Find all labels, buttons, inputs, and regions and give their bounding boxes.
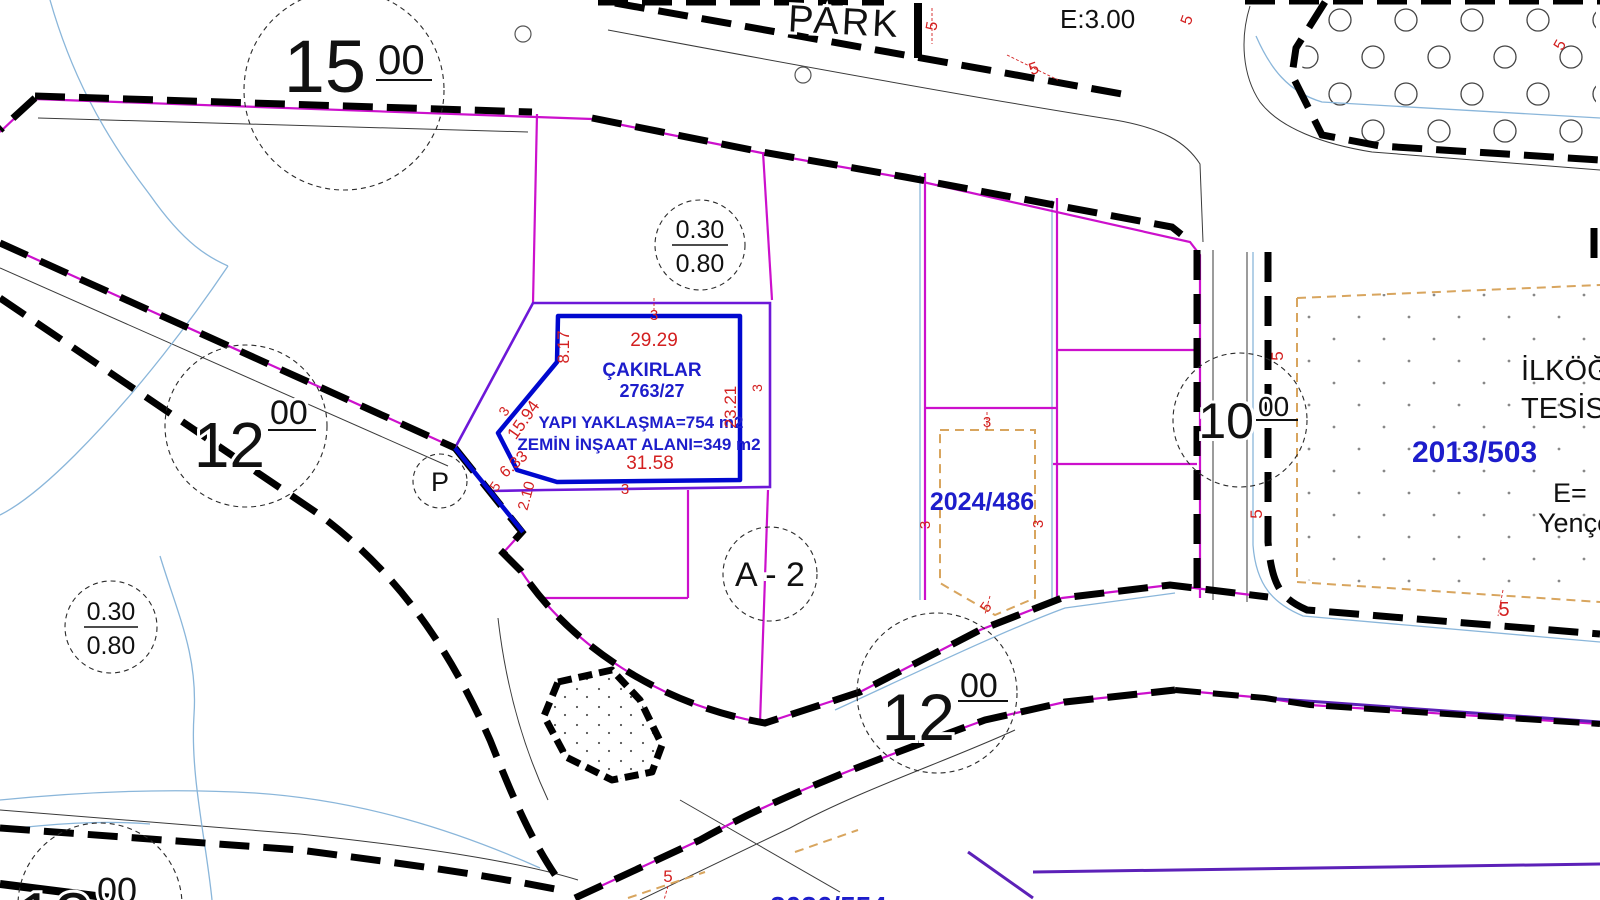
- ratio-bottom-value: 0.80: [676, 250, 725, 278]
- small-marker-circle: [515, 26, 531, 42]
- parcel-line-dark: [1265, 698, 1600, 722]
- imar-plan-canvas: 15 00 12 00 10 00 12 00 12 00 0.30 0.80: [0, 0, 1600, 900]
- road-line: [0, 98, 35, 130]
- cakirlar-name: ÇAKIRLAR: [602, 360, 701, 381]
- school-line2: TESİS: [1521, 392, 1600, 425]
- school-line3: E=: [1553, 478, 1587, 508]
- park-hatch-area: [1300, 6, 1596, 152]
- park-area-label: PARK: [787, 0, 902, 46]
- dim-left-small: 2.10: [515, 480, 539, 513]
- setback-5-label: 5: [923, 20, 941, 32]
- setback-5-label: 5: [1247, 509, 1266, 518]
- school-line4: Yenço: [1538, 508, 1600, 538]
- cakirlar-ground-area: ZEMİN İNŞAAT ALANI=349 m2: [517, 435, 760, 454]
- dim-bottom: 31.58: [626, 453, 674, 474]
- parking-label: P: [431, 467, 449, 497]
- emsal-label: E:3.00: [1060, 4, 1135, 34]
- road-width-label-10: 10 00: [1198, 391, 1298, 449]
- road-width-sup: 00: [97, 870, 137, 900]
- road-width-main: 12: [882, 680, 955, 754]
- setback-5-label: 5: [977, 599, 996, 616]
- road-width-label-12-left: 12 00: [194, 394, 316, 481]
- cakirlar-approach-area: YAPI YAKLAŞMA=754 m2: [539, 413, 744, 432]
- road-width-main: 12: [194, 409, 265, 481]
- stream-line: [0, 791, 540, 868]
- road-width-main: 10: [1198, 393, 1254, 449]
- setback-3-label: 3: [621, 481, 629, 498]
- parcel-2026-label: 2026/554: [770, 891, 887, 900]
- stream-line: [160, 556, 212, 900]
- dim-top: 29.29: [630, 330, 678, 351]
- setback-3-label: 3: [1030, 520, 1047, 528]
- block-boundary: [35, 99, 1200, 598]
- ratio-bottom-value: 0.80: [87, 632, 136, 660]
- ratio-label-bottom-left: 0.30 0.80: [84, 598, 138, 660]
- parcel-line-dark: [1033, 864, 1600, 872]
- setback-5-label: 5: [1498, 599, 1509, 621]
- road-width-sup: 00: [270, 394, 308, 432]
- dim-right: 23.21: [721, 386, 740, 429]
- parcel-2024-label: 2024/486: [930, 488, 1034, 516]
- road-width-sup: 00: [1258, 391, 1289, 422]
- setback-3-label: 3: [917, 521, 934, 529]
- school-parcel-no: 2013/503: [1412, 436, 1537, 469]
- setback-5-label: 5: [1268, 351, 1287, 360]
- parcel-line: [763, 152, 772, 300]
- approach-line-2024: [940, 430, 1035, 615]
- ratio-label-top: 0.30 0.80: [672, 216, 728, 278]
- approach-line-small: [795, 830, 858, 852]
- traffic-island: [544, 670, 662, 780]
- parcel-line-dark: [968, 852, 1033, 898]
- dim-left: 8.17: [554, 330, 573, 363]
- setback-3-label: 3: [749, 384, 765, 392]
- zoning-plan-viewport: 15 00 12 00 10 00 12 00 12 00 0.30 0.80: [0, 0, 1600, 900]
- setback-3-label: 3: [650, 307, 658, 324]
- parcel-line: [760, 490, 768, 723]
- road-edge-line: [0, 810, 578, 880]
- small-marker-circle: [795, 67, 811, 83]
- road-edge-line: [680, 800, 840, 892]
- road-width-sup: 00: [960, 667, 998, 705]
- road-edge-line: [38, 118, 528, 132]
- school-line1: İLKÖĞ: [1521, 354, 1600, 387]
- road-edge-line: [640, 730, 1015, 900]
- setback-5-label: 5: [1178, 13, 1197, 27]
- cakirlar-parcel-no: 2763/27: [619, 381, 684, 401]
- road-width-sup: 00: [378, 36, 425, 83]
- zoning-label-a2: A - 2: [735, 556, 805, 594]
- setback-3-label: 3: [983, 414, 991, 431]
- ratio-top-value: 0.30: [87, 598, 136, 626]
- setback-5-label: 5: [663, 867, 672, 886]
- road-line: [0, 298, 560, 882]
- road-width-main: 15: [284, 25, 366, 108]
- stream-line: [50, 0, 228, 266]
- parcel-line: [533, 114, 537, 303]
- road-width-main: 12: [16, 879, 92, 900]
- road-width-label-12-corner: 12 00: [16, 870, 137, 900]
- road-width-label-15: 15 00: [284, 25, 432, 108]
- ratio-top-value: 0.30: [676, 216, 725, 244]
